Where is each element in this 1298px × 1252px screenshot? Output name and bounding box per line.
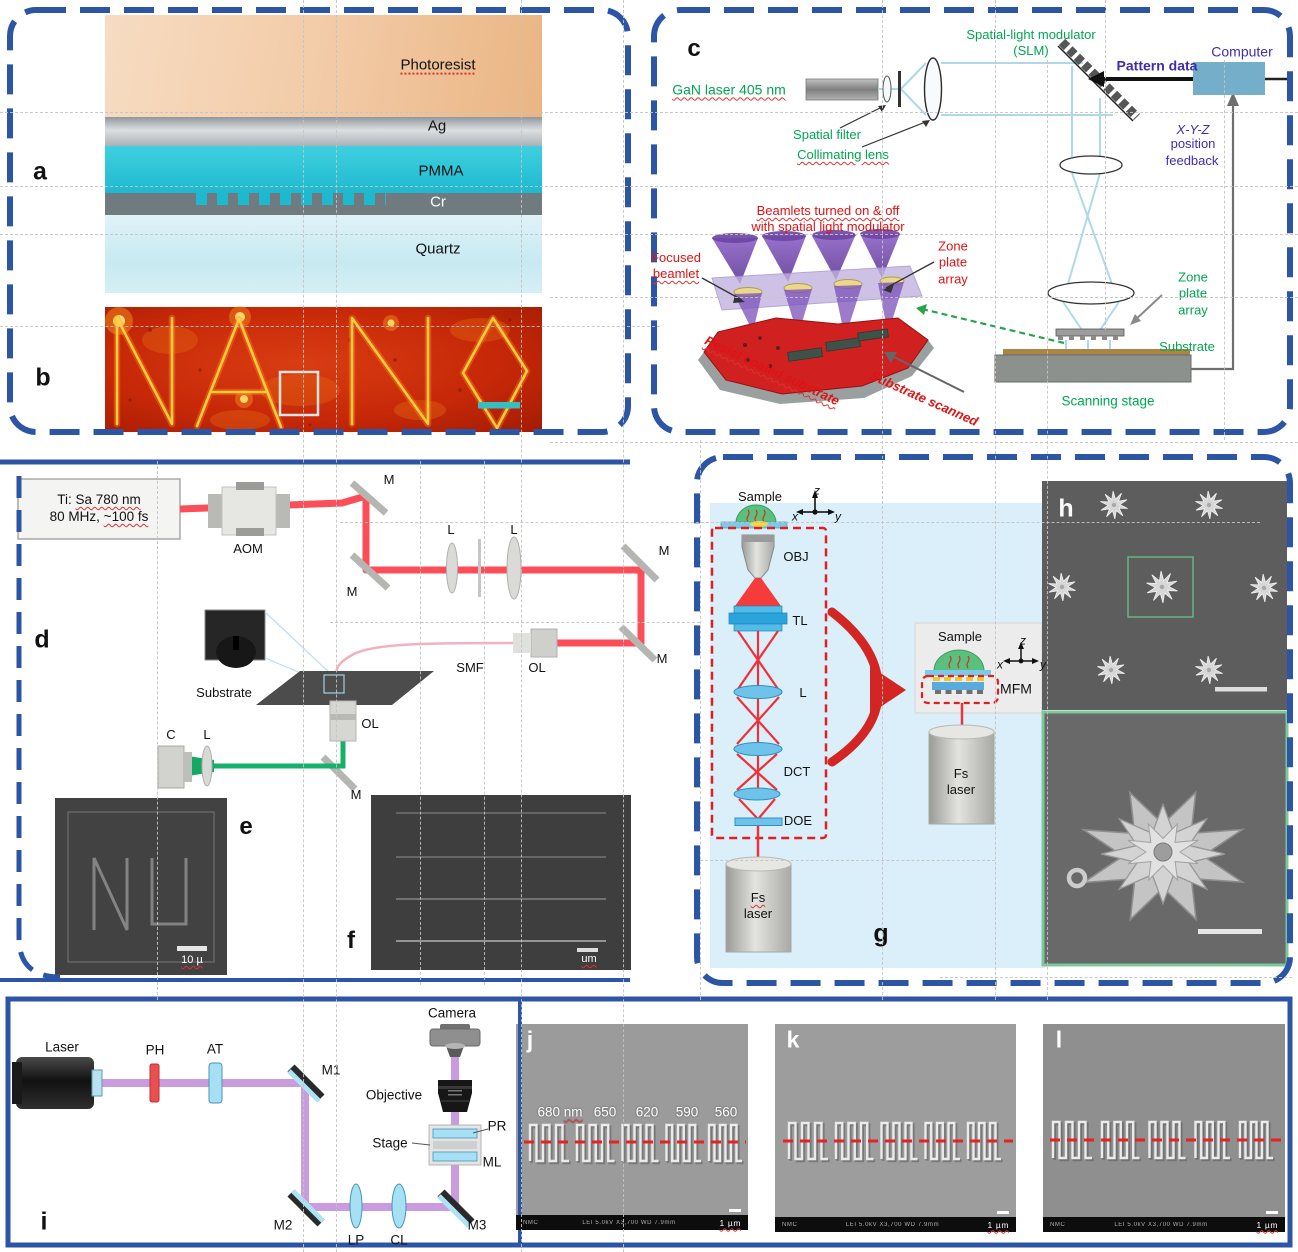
size-label-590: 590: [676, 1105, 699, 1122]
panels-jkl-sem: [516, 1024, 1285, 1232]
label-zone-plate-green: Zone plate array: [1178, 270, 1208, 319]
label-ol-right: OL: [528, 660, 545, 676]
label-photoresist: Photoresist: [400, 57, 475, 76]
label-smf: SMF: [456, 660, 483, 676]
sem-j-scale: 1 µm: [720, 1218, 741, 1228]
label-ml: ML: [483, 1155, 502, 1172]
label-pmma: PMMA: [419, 163, 464, 182]
sem-e-scale-text: 10 µ: [181, 954, 203, 968]
lens-l1: [447, 543, 458, 593]
label-mfm: MFM: [1000, 680, 1032, 698]
fs-right-2: laser: [947, 782, 975, 798]
label-zone-plate-red: Zone plate array: [938, 239, 968, 288]
panel-l-label: l: [1056, 1026, 1062, 1055]
zone-red-3: array: [938, 271, 968, 287]
zone-green-2: plate: [1178, 286, 1208, 302]
fs-right-1: Fs: [947, 766, 975, 782]
size-label-620: 620: [636, 1105, 659, 1122]
label-m-right-top: M: [659, 543, 670, 559]
sample-dome: [736, 505, 776, 523]
pinhole-aperture: [898, 71, 901, 107]
sem-j-meta-left: NMC: [523, 1220, 538, 1226]
mfm-lens-bar: [932, 682, 984, 690]
lens-cl: [392, 1184, 406, 1228]
label-gan-laser: GaN laser 405 nm: [672, 81, 786, 99]
label-stage: Stage: [372, 1136, 407, 1153]
lens-dct-2: [734, 788, 780, 800]
coupling-objective-tip: [513, 633, 531, 653]
big-red-arrow: [832, 612, 906, 762]
label-beamlets: Beamlets turned on & off with spatial li…: [751, 203, 904, 236]
red-cone: [735, 578, 781, 606]
panel-f-sem: [371, 795, 631, 970]
label-position: position: [1171, 136, 1216, 152]
label-sample-top: Sample: [738, 489, 782, 505]
sem-h-scalebar: [1215, 687, 1267, 692]
axis-z-top: z: [814, 484, 820, 499]
label-l1: L: [447, 522, 454, 538]
label-aom: AOM: [233, 541, 263, 557]
laser-aperture: [92, 1070, 102, 1096]
collimating-pointer: [862, 121, 928, 147]
label-focused-line2: beamlet: [651, 266, 701, 282]
detector-c: [158, 746, 184, 788]
spatial-filter-pointer: [840, 106, 884, 128]
zone-green-3: array: [1178, 302, 1208, 318]
gan-laser-head: [806, 79, 878, 100]
scanning-stage-block: [995, 355, 1191, 382]
label-focused-beamlet: Focused beamlet: [651, 250, 701, 283]
sem-l-scale-tick: [1266, 1211, 1278, 1214]
panel-k-label: k: [787, 1026, 800, 1055]
sem-h-closeup-scalebar: [1198, 929, 1262, 934]
sem-k-infobar: NMC LEI 5.0kV X3,700 WD 7.9mm 1 µm: [775, 1217, 1016, 1232]
sem-j-infobar: NMC LEI 5.0kV X3,700 WD 7.9mm 1 µm: [516, 1215, 748, 1230]
label-tisa-laser: Ti: Sa 780 nm 80 MHz, ~100 fs: [50, 492, 149, 526]
label-l-bottom: L: [203, 727, 210, 743]
lens-dct-1: [734, 743, 782, 756]
sem-f-scalebar: [577, 948, 598, 952]
size-label-650: 650: [594, 1105, 617, 1122]
zone-plate-teeth: [1058, 336, 1118, 340]
fs-left-1: Fs: [744, 890, 772, 906]
relay-lens-2: [1048, 282, 1134, 304]
detector-c-front: [184, 752, 192, 782]
mirror-m-bottom: [323, 757, 355, 789]
label-substrate-c: Substrate: [1159, 339, 1215, 355]
label-pattern-data: Pattern data: [1117, 57, 1198, 75]
panel-c-label: c: [687, 34, 700, 64]
label-slm-line1: Spatial-light modulator: [966, 27, 1095, 43]
size-680: 680: [537, 1105, 560, 1120]
label-fs-laser-right: Fs laser: [947, 766, 975, 799]
sem-k-scale: 1 µm: [988, 1220, 1009, 1230]
axis-x-inset: x: [997, 658, 1003, 673]
sem-j-scale-tick: [729, 1209, 741, 1212]
green-link-arrowhead: [916, 304, 927, 315]
substrate-plate: [256, 671, 434, 705]
label-at: AT: [207, 1042, 223, 1059]
label-feedback: feedback: [1166, 153, 1219, 169]
size-nm: nm: [564, 1105, 583, 1120]
zone-red-2: plate: [938, 255, 968, 271]
label-obj: OBJ: [783, 549, 808, 565]
panel-b-label: b: [35, 362, 50, 393]
panel-e-sem: [55, 798, 227, 975]
tisa-line1a: Ti:: [57, 492, 72, 507]
tisa-line1b: Sa 780 nm: [75, 492, 140, 507]
collection-objective-band: [330, 714, 356, 720]
lens-l: [734, 686, 782, 699]
zone-plate-pointer: [1134, 295, 1162, 321]
tube-lens-tl: [729, 606, 787, 631]
label-camera: Camera: [428, 1006, 476, 1023]
zone-green-1: Zone: [1178, 270, 1208, 286]
label-ol-bottom: OL: [361, 716, 378, 732]
label-computer: Computer: [1211, 43, 1272, 61]
panel-f-label: f: [347, 926, 355, 956]
tisa-line2b: ~100 fs: [104, 509, 149, 524]
sem-l-meta: LEI 5.0kV X3,700 WD 7.9mm: [1114, 1222, 1207, 1228]
label-m1: M1: [322, 1063, 341, 1080]
label-cl: CL: [390, 1233, 407, 1250]
label-quartz: Quartz: [415, 241, 460, 260]
camera-view-slot: [233, 636, 239, 650]
zone-plate-array-bar: [1056, 329, 1124, 336]
sem-k-meta-left: NMC: [782, 1222, 797, 1228]
attenuator-at: [209, 1063, 222, 1103]
sem-k-scale-tick: [997, 1211, 1009, 1214]
label-objective-i: Objective: [366, 1088, 422, 1105]
label-laser-i: Laser: [45, 1040, 79, 1057]
label-slm-line2: (SLM): [966, 43, 1095, 59]
label-scanning-stage: Scanning stage: [1061, 394, 1154, 411]
inset-link-line-1: [265, 612, 333, 676]
size-label-680nm: 680 nm: [537, 1105, 582, 1122]
label-m3: M3: [468, 1218, 487, 1235]
relay-lens-1: [1060, 156, 1122, 174]
label-m-bottom: M: [351, 787, 362, 803]
label-l2: L: [510, 522, 517, 538]
size-label-560: 560: [715, 1105, 738, 1122]
pinhole-ph: [150, 1064, 159, 1102]
stage-pointer: [412, 1143, 430, 1145]
label-dct: DCT: [784, 764, 811, 780]
panel-h-label: h: [1058, 493, 1073, 524]
sem-l-scale: 1 µm: [1257, 1220, 1278, 1230]
panel-j-label: j: [527, 1026, 533, 1055]
label-beamlets-line1: Beamlets turned on & off: [751, 203, 904, 219]
label-substrate-d: Substrate: [196, 685, 252, 701]
label-collimating-lens: Collimating lens: [797, 147, 889, 163]
doe-element: [735, 818, 782, 826]
label-m2: M2: [274, 1218, 293, 1235]
focus-glow: [750, 521, 768, 527]
axis-x-top: x: [792, 510, 798, 525]
figure-art: [0, 0, 1298, 1252]
label-l-g: L: [799, 685, 806, 701]
panel-i-diagram: [12, 1024, 488, 1228]
panel-d-left-dashed: [19, 476, 60, 977]
spatial-filter-lens: [883, 76, 891, 102]
lens-lp: [350, 1184, 362, 1228]
label-doe: DOE: [784, 813, 812, 829]
panel-b-afm-image: [105, 306, 542, 432]
label-beamlets-line2: with spatial light modulator: [751, 219, 904, 235]
label-fs-laser-left: Fs laser: [744, 890, 772, 923]
lens-l2: [507, 537, 521, 599]
panel-g-label: g: [873, 918, 888, 949]
pinhole-plate: [478, 539, 481, 597]
sem-f-scale-text: um: [581, 953, 596, 967]
camera-i: [430, 1024, 480, 1057]
laser-body: [16, 1057, 94, 1109]
axis-y-top: y: [835, 510, 841, 525]
sem-k-meta: LEI 5.0kV X3,700 WD 7.9mm: [846, 1222, 939, 1228]
panel-a-label: a: [33, 156, 47, 187]
label-m-top: M: [384, 472, 395, 488]
axis-y-inset: y: [1040, 658, 1046, 673]
green-dashed-link: [922, 309, 1064, 343]
coupling-objective: [531, 629, 557, 657]
panel-g-diagram: [712, 490, 1042, 952]
label-sample-inset: Sample: [938, 629, 982, 645]
label-tl: TL: [792, 613, 807, 629]
label-c-detector: C: [166, 727, 175, 743]
sem-l-infobar: NMC LEI 5.0kV X3,700 WD 7.9mm 1 µm: [1043, 1217, 1285, 1232]
afm-scalebar: [478, 402, 520, 409]
panel-e-label: e: [239, 812, 252, 842]
laser-rear: [12, 1062, 22, 1104]
label-focused-line1: Focused: [651, 250, 701, 266]
objective-band: [742, 535, 774, 542]
label-ag: Ag: [428, 118, 446, 137]
aom-modulator: [208, 482, 290, 536]
mirrors: [323, 483, 657, 789]
label-m-right-bottom: M: [657, 651, 668, 667]
collection-objective: [330, 701, 356, 741]
sem-j-meta: LEI 5.0kV X3,700 WD 7.9mm: [582, 1220, 675, 1226]
computer-box: [1193, 62, 1265, 95]
sem-e-scalebar: [177, 946, 207, 951]
lens-l-bottom: [202, 746, 212, 786]
panel-h-sem: [1042, 481, 1287, 965]
fs-left-2: laser: [744, 906, 772, 922]
blue-beam-lines: [878, 63, 1119, 349]
label-pr: PR: [488, 1119, 507, 1136]
label-slm: Spatial-light modulator (SLM): [966, 27, 1095, 60]
label-ph: PH: [146, 1043, 165, 1060]
tisa-line2a: 80 MHz,: [50, 509, 100, 524]
label-lp: LP: [348, 1233, 365, 1250]
zone-red-1: Zone: [938, 239, 968, 255]
sem-l-meta-left: NMC: [1050, 1222, 1065, 1228]
collimating-lens: [925, 58, 942, 120]
label-m-mid: M: [347, 584, 358, 600]
parallel-writing-inset: [698, 229, 964, 404]
panel-i-label: i: [41, 1206, 48, 1237]
figure-canvas: a Photoresist Ag PMMA Cr Quartz b c GaN …: [0, 0, 1298, 1252]
panel-d-label: d: [34, 624, 49, 655]
label-cr: Cr: [430, 194, 446, 213]
axis-z-inset: z: [1020, 634, 1026, 649]
label-spatial-filter: Spatial filter: [793, 127, 861, 143]
objective-i: [438, 1080, 472, 1112]
stage-assembly: [429, 1125, 481, 1165]
